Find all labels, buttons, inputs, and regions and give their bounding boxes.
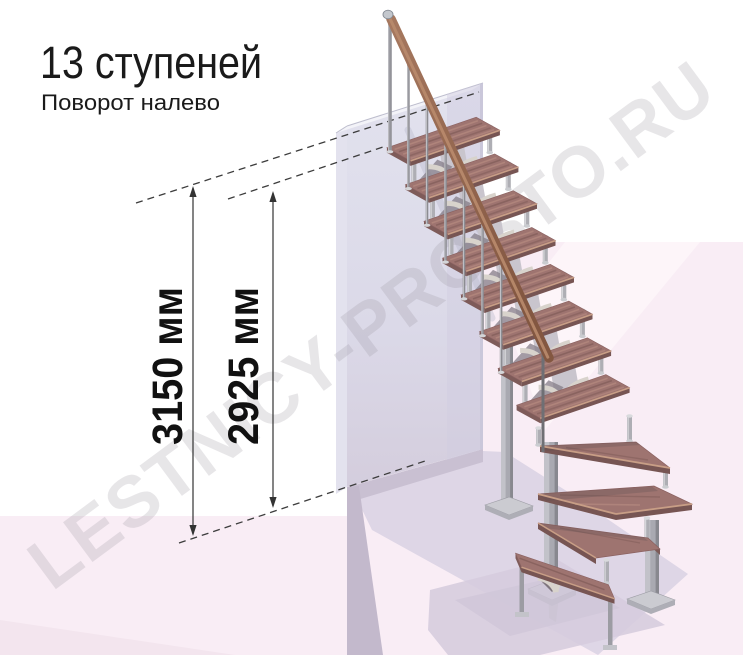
svg-text:13 ступеней: 13 ступеней bbox=[40, 37, 262, 88]
svg-text:2925 мм: 2925 мм bbox=[221, 287, 268, 445]
svg-text:Поворот налево: Поворот налево bbox=[41, 90, 220, 115]
svg-text:3150 мм: 3150 мм bbox=[145, 287, 192, 445]
